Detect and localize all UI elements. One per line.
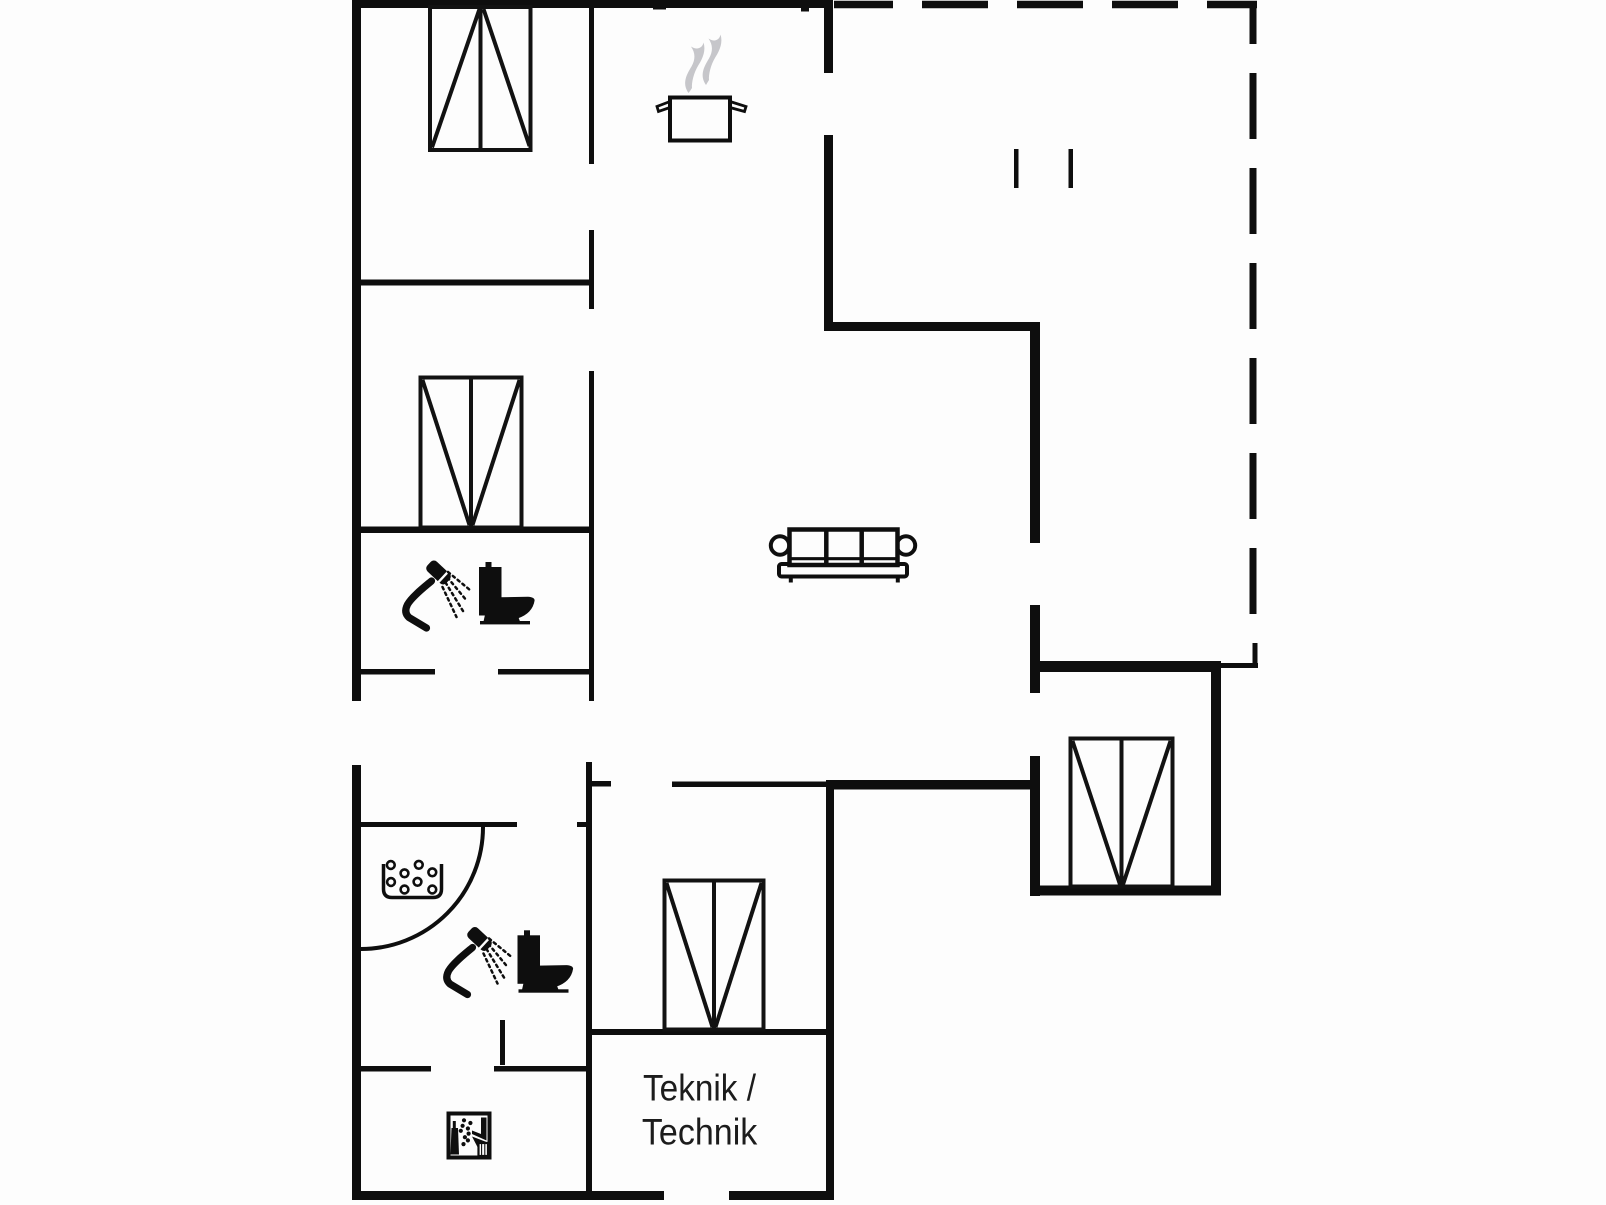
- svg-text:Technik: Technik: [642, 1111, 758, 1153]
- svg-text:Teknik /: Teknik /: [643, 1067, 757, 1109]
